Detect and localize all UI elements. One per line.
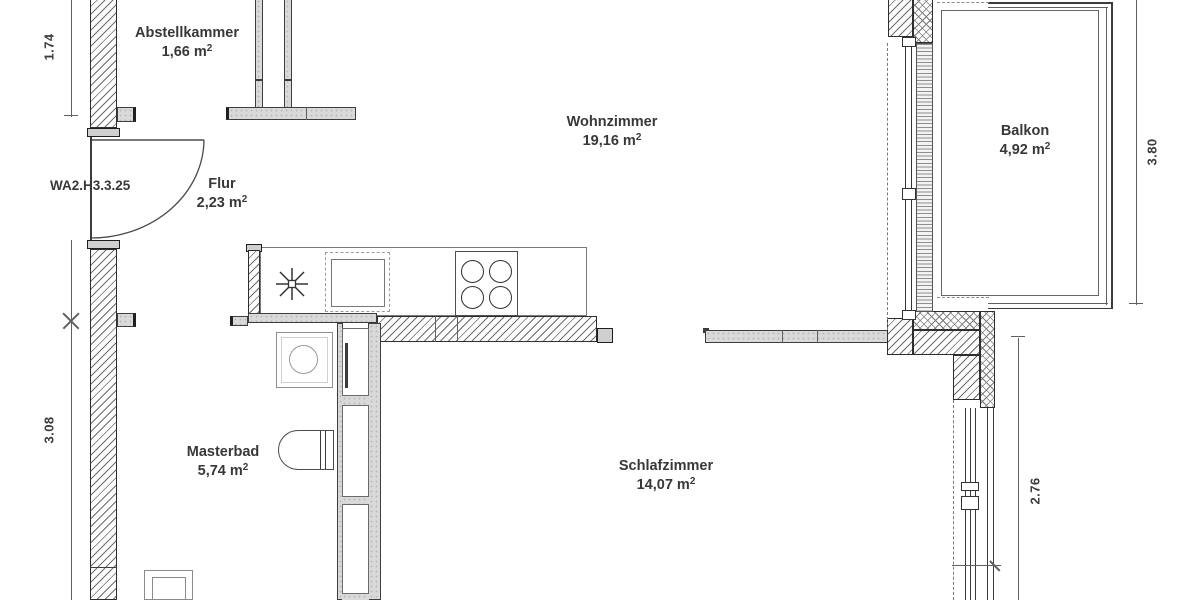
window-sill-strip: [916, 43, 933, 312]
room-area-value: 2,23 m: [197, 195, 242, 211]
balcony-hidden-edge-bottom: [937, 297, 989, 298]
room-area-value: 14,07 m: [637, 477, 690, 493]
dim-tick-bedroom: [1011, 336, 1025, 337]
kitchen-wall-left: [248, 250, 260, 316]
toilet-tank-line-1: [320, 431, 321, 469]
room-label-schlafzimmer: Schlafzimmer 14,07 m2: [619, 457, 713, 496]
bedroom-wall-face-1: [987, 408, 988, 600]
room-name: Flur: [197, 175, 248, 194]
burner-icon: [489, 286, 512, 309]
room-area: 14,07 m2: [619, 476, 713, 496]
balcony-rail-right-outer: [1111, 2, 1113, 309]
bath-wall-connector-1: [342, 396, 369, 405]
storage-wall-division: [306, 107, 307, 120]
left-wall-joint: [90, 567, 117, 568]
room-area-value: 1,66 m: [162, 44, 207, 60]
room-area-value: 19,16 m: [583, 133, 636, 149]
dimension-left-top: 1.74: [42, 34, 57, 61]
dim-line-bedroom: [1018, 338, 1019, 600]
window-cap-bottom: [902, 310, 916, 320]
corner-wall-cross-top: [913, 311, 980, 330]
burner-icon: [461, 260, 484, 283]
bath-wall-strip-right: [368, 323, 381, 600]
dimension-left-bottom: 3.08: [42, 417, 57, 444]
corner-wall-cross-right: [980, 311, 995, 408]
storage-wall-tick-2: [284, 79, 292, 81]
room-area: 1,66 m2: [135, 43, 239, 63]
kitchen-wall-bottom: [377, 316, 597, 342]
balcony-rail-top-mid: [988, 7, 1108, 8]
kitchen-thin-wall: [248, 313, 377, 323]
corner-wall-diag-left: [887, 318, 913, 355]
balcony-rail-bottom-mid: [988, 303, 1108, 304]
room-area-sup: 2: [207, 43, 213, 54]
room-label-balkon: Balkon 4,92 m2: [1000, 122, 1051, 161]
left-wall-top: [90, 0, 117, 128]
kitchen-wall-end-cap: [597, 328, 613, 343]
toilet-tank-line-2: [325, 431, 326, 469]
bedroom-wall-division-2: [817, 330, 818, 343]
window-cap-mid: [902, 188, 916, 200]
bath-door-leaf: [345, 343, 348, 388]
dim-line-left-bottom: [71, 240, 72, 600]
kitchen-sink-basin: [331, 259, 385, 307]
unit-code-label: WA2.H3.3.25: [50, 178, 130, 193]
room-label-wohnzimmer: Wohnzimmer 19,16 m2: [567, 113, 658, 152]
room-name: Abstellkammer: [135, 24, 239, 43]
balcony-hidden-edge-top: [937, 2, 989, 3]
balcony-rail-top-outer: [988, 2, 1113, 4]
storage-wall-vertical-1: [255, 0, 263, 108]
top-wall-diag: [888, 0, 913, 37]
storage-wall-tick-1: [255, 79, 263, 81]
washbasin-inner: [152, 577, 186, 600]
bedroom-window-connector-1: [961, 482, 979, 491]
top-wall-cross: [913, 0, 933, 43]
bedroom-wall: [705, 330, 890, 343]
room-area-sup: 2: [243, 462, 249, 473]
kitchen-wall-division-2: [457, 316, 458, 342]
room-area-value: 4,92 m: [1000, 142, 1045, 158]
room-label-flur: Flur 2,23 m2: [197, 175, 248, 214]
wall-stub-upper: [117, 107, 136, 122]
room-area: 5,74 m2: [187, 462, 260, 482]
room-area: 19,16 m2: [567, 132, 658, 152]
dim-tick-balcony: [1129, 303, 1143, 304]
bedroom-wall-division-1: [782, 330, 783, 343]
bath-wall-connector-2: [342, 497, 369, 504]
bedroom-facade-hidden-edge: [953, 400, 954, 600]
stove-4-burner-icon: [455, 251, 518, 316]
storage-wall-horizontal: [226, 107, 356, 120]
burner-icon: [489, 260, 512, 283]
window-cap-top: [902, 37, 916, 47]
room-area-sup: 2: [636, 132, 642, 143]
wall-stub-lower: [117, 313, 136, 327]
bath-wall-panel-3: [342, 504, 369, 594]
room-name: Balkon: [1000, 122, 1051, 141]
kitchen-wall-division-1: [435, 316, 436, 342]
corner-wall-diag-down: [953, 355, 980, 400]
dim-line-left-top: [71, 0, 72, 117]
kitchen-wall-stub: [230, 316, 248, 326]
window-glass-lower: [905, 200, 912, 310]
bath-wall-panel-2: [342, 405, 369, 497]
dim-line-balcony: [1136, 0, 1137, 305]
window-glass-upper: [905, 47, 912, 188]
dimension-right-bedroom: 2.76: [1028, 478, 1043, 505]
bath-wall-connector-3: [342, 594, 369, 600]
room-name: Wohnzimmer: [567, 113, 658, 132]
room-label-abstellkammer: Abstellkammer 1,66 m2: [135, 24, 239, 63]
burner-icon: [461, 286, 484, 309]
facade-hidden-edge: [887, 43, 888, 330]
room-label-masterbad: Masterbad 5,74 m2: [187, 443, 260, 482]
corner-wall-diag-mid: [913, 330, 980, 355]
room-area-sup: 2: [1045, 141, 1051, 152]
balcony-rail-bottom-outer: [988, 308, 1113, 310]
balcony-rail-right-mid: [1106, 7, 1107, 305]
bedroom-wall-face-2: [993, 408, 994, 600]
room-area: 4,92 m2: [1000, 141, 1051, 161]
room-area-value: 5,74 m: [198, 463, 243, 479]
kitchen-counter: [260, 247, 587, 316]
room-area: 2,23 m2: [197, 194, 248, 214]
star-drain-icon: [275, 267, 309, 301]
dimension-right-balcony: 3.80: [1145, 139, 1160, 166]
bedroom-window-connector-2: [961, 496, 979, 510]
dim-tick-left-top: [64, 115, 78, 116]
storage-wall-vertical-2: [284, 0, 292, 108]
room-name: Masterbad: [187, 443, 260, 462]
room-name: Schlafzimmer: [619, 457, 713, 476]
room-area-sup: 2: [242, 194, 248, 205]
washing-machine-drum: [289, 345, 318, 374]
left-wall-bottom: [90, 249, 117, 600]
floor-plan-canvas: 1.74 3.08 3.80 2.76 WA2.H3.3.25 Abstellk…: [0, 0, 1200, 600]
room-area-sup: 2: [690, 476, 696, 487]
